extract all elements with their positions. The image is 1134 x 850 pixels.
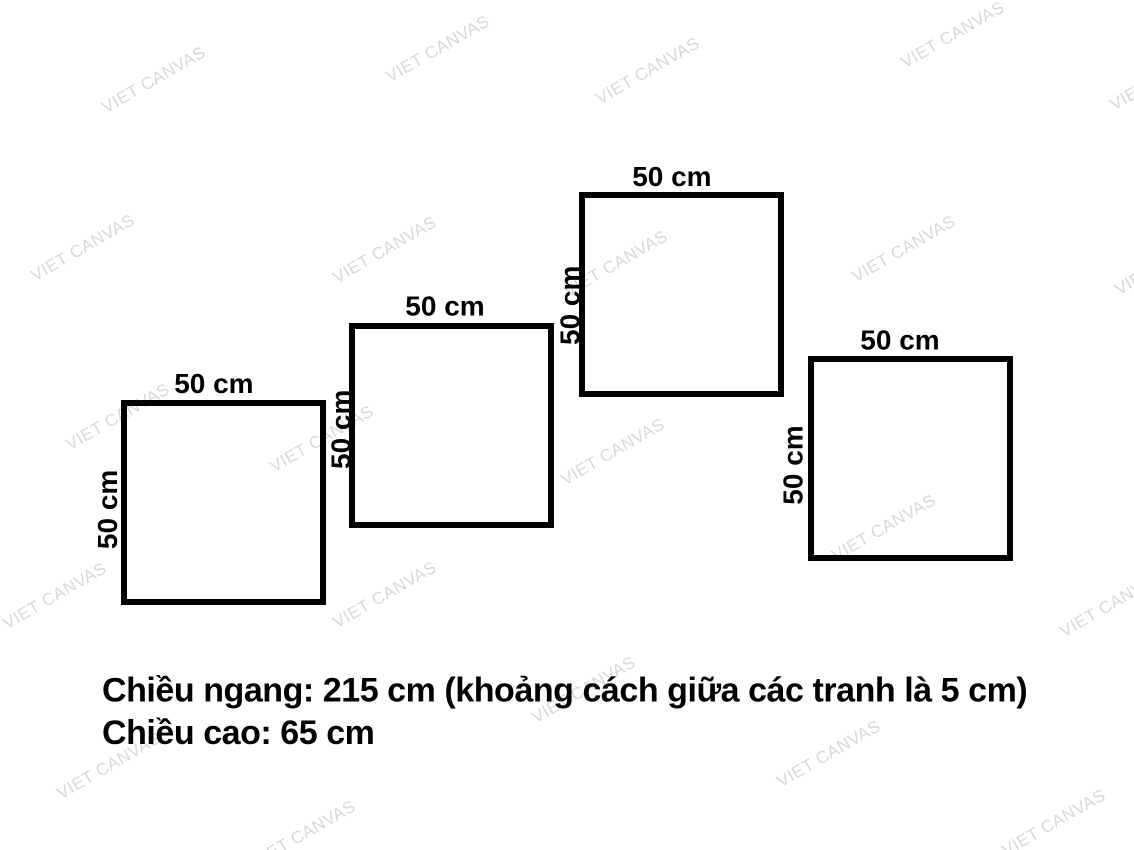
svg-text:Chiều cao: 65 cm: Chiều cao: 65 cm <box>102 714 374 752</box>
svg-text:50 cm: 50 cm <box>405 291 484 322</box>
svg-text:50 cm: 50 cm <box>554 266 585 345</box>
svg-text:50 cm: 50 cm <box>325 390 356 469</box>
svg-text:Chiều ngang: 215 cm (khoảng cá: Chiều ngang: 215 cm (khoảng cách giữa cá… <box>102 672 1027 710</box>
svg-text:50 cm: 50 cm <box>860 325 939 356</box>
svg-text:50 cm: 50 cm <box>632 161 711 192</box>
svg-text:50 cm: 50 cm <box>92 470 123 549</box>
svg-text:50 cm: 50 cm <box>778 425 809 504</box>
svg-text:50 cm: 50 cm <box>174 368 253 399</box>
